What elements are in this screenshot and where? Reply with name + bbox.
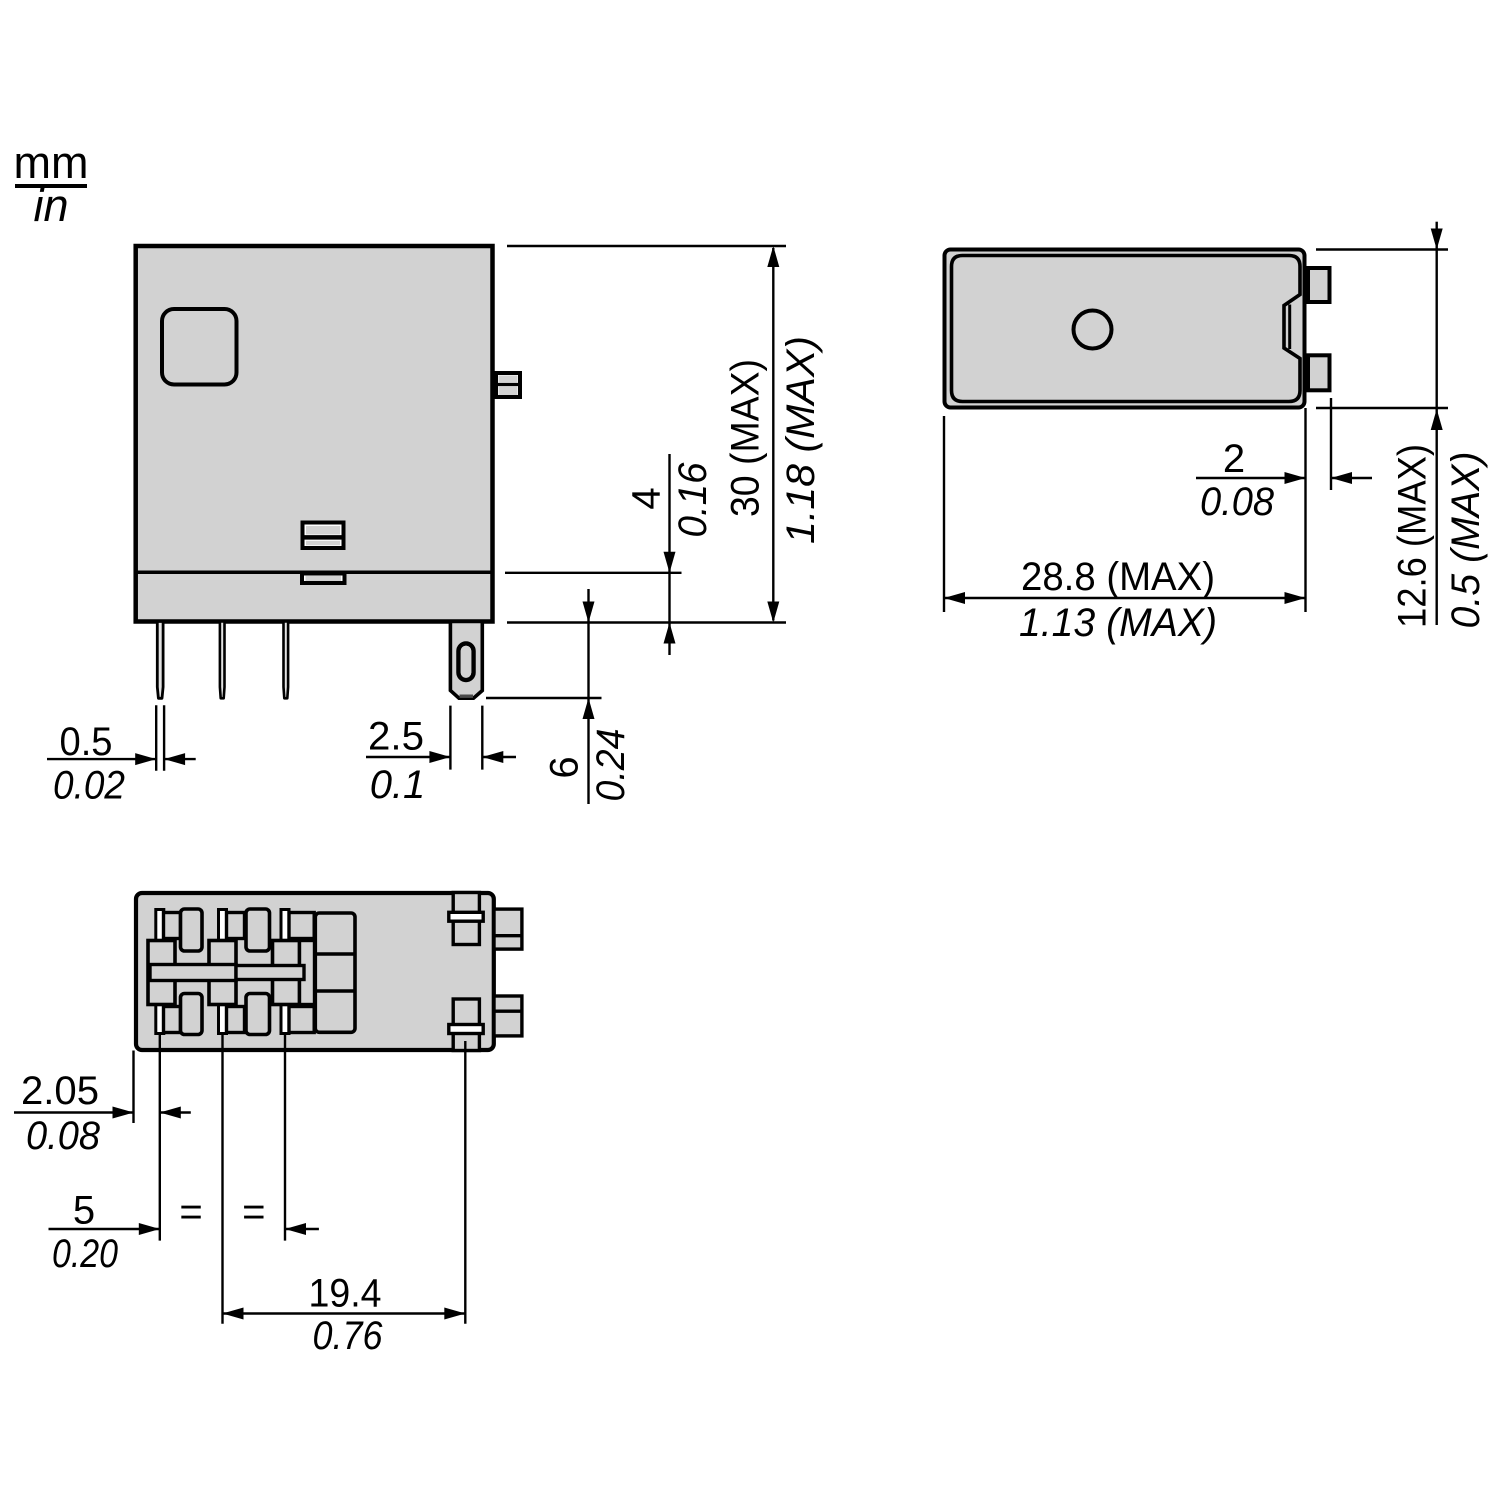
svg-text:30 (MAX): 30 (MAX) [724, 359, 768, 517]
svg-text:1.13 (MAX): 1.13 (MAX) [1019, 601, 1217, 645]
svg-text:0.08: 0.08 [26, 1114, 101, 1158]
svg-text:0.1: 0.1 [370, 763, 426, 807]
svg-text:0.16: 0.16 [671, 462, 715, 538]
svg-text:0.76: 0.76 [313, 1314, 384, 1358]
svg-text:1.18 (MAX): 1.18 (MAX) [779, 336, 823, 544]
svg-text:5: 5 [73, 1189, 95, 1233]
svg-text:0.5 (MAX): 0.5 (MAX) [1444, 452, 1488, 629]
svg-text:6: 6 [543, 756, 587, 778]
svg-text:0.20: 0.20 [52, 1232, 118, 1276]
svg-text:2.5: 2.5 [368, 715, 424, 759]
svg-text:in: in [33, 180, 68, 231]
svg-text:19.4: 19.4 [309, 1272, 382, 1316]
svg-text:2.05: 2.05 [21, 1069, 99, 1113]
svg-text:4: 4 [625, 487, 669, 509]
svg-text:0.08: 0.08 [1200, 480, 1275, 524]
svg-text:=: = [242, 1190, 265, 1234]
svg-text:0.5: 0.5 [60, 720, 113, 764]
svg-text:12.6 (MAX): 12.6 (MAX) [1391, 444, 1435, 628]
svg-text:0.24: 0.24 [589, 729, 633, 802]
svg-text:2: 2 [1223, 437, 1245, 481]
svg-text:0.02: 0.02 [53, 764, 125, 808]
svg-text:=: = [179, 1190, 202, 1234]
svg-text:28.8 (MAX): 28.8 (MAX) [1021, 555, 1215, 599]
